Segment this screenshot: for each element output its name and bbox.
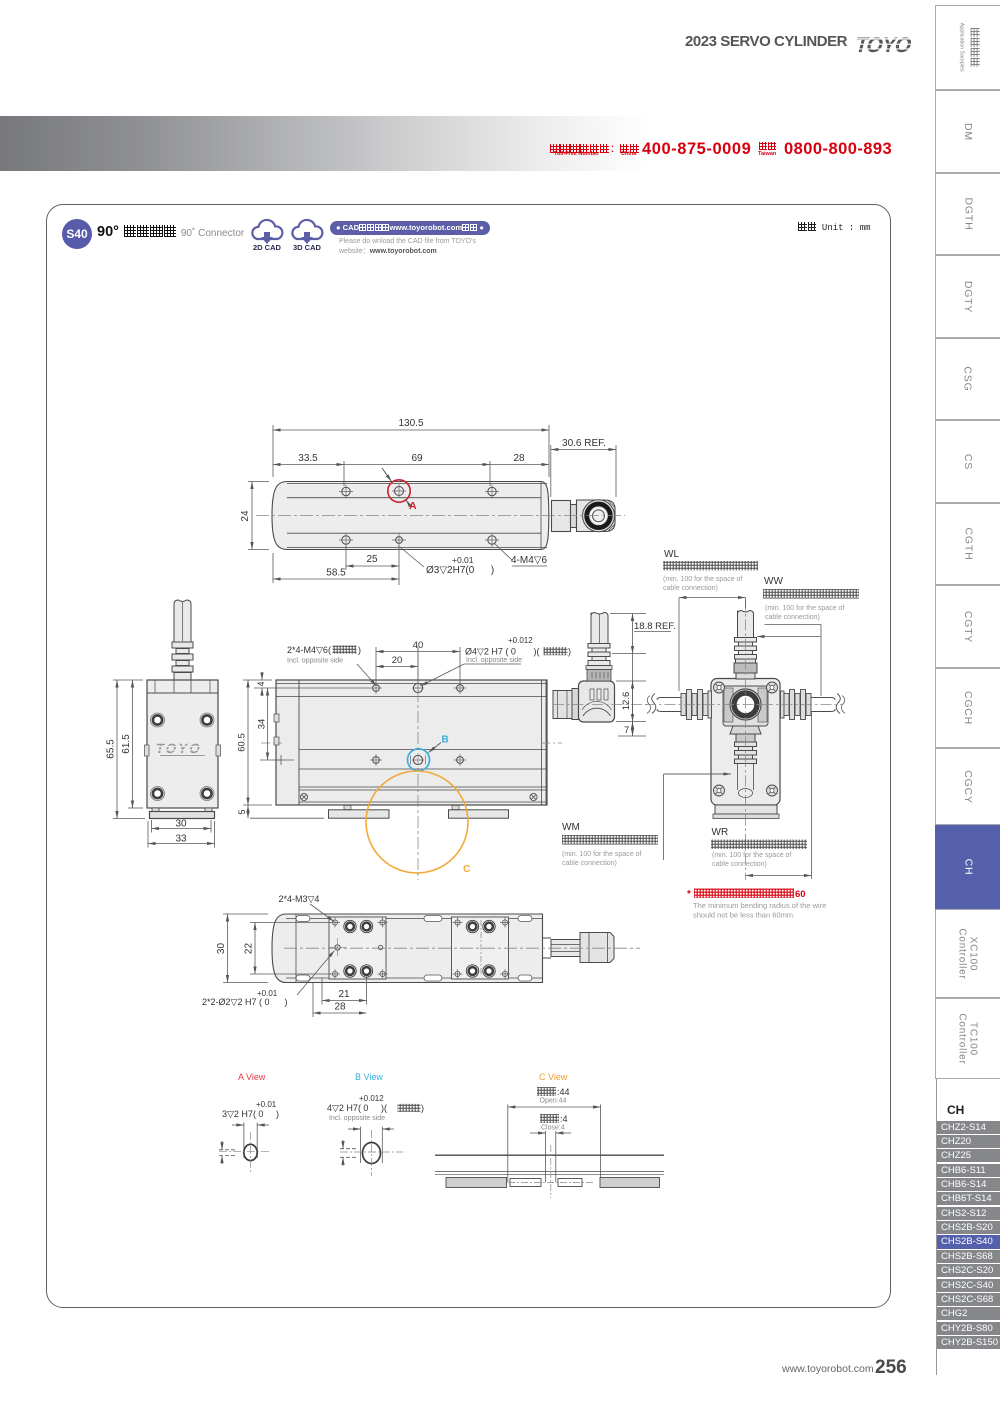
svg-text:5: 5 bbox=[237, 809, 247, 814]
svg-text:4: 4 bbox=[256, 681, 266, 686]
svg-text:60: 60 bbox=[795, 889, 806, 900]
svg-text:Ø3▽2H7(0 ): Ø3▽2H7(0 ) bbox=[426, 565, 494, 576]
svg-text:34: 34 bbox=[257, 719, 268, 730]
svg-text:2*4-M3▽4: 2*4-M3▽4 bbox=[279, 894, 320, 904]
svg-text:WW: WW bbox=[764, 576, 783, 587]
svg-text:A: A bbox=[409, 500, 417, 512]
svg-text:+0.01: +0.01 bbox=[256, 1100, 277, 1109]
svg-text:A View: A View bbox=[238, 1072, 266, 1082]
svg-text:B View: B View bbox=[355, 1072, 383, 1082]
svg-text:+0.012: +0.012 bbox=[508, 636, 533, 645]
svg-text:65.5: 65.5 bbox=[106, 739, 117, 759]
svg-text:cable connection): cable connection) bbox=[562, 860, 617, 867]
svg-text:18.8 REF.: 18.8 REF. bbox=[634, 621, 676, 632]
svg-text:C: C bbox=[463, 863, 471, 875]
svg-text:4▽2 H7( 0 )(: 4▽2 H7( 0 )( bbox=[327, 1103, 387, 1113]
svg-text:cable connection): cable connection) bbox=[765, 614, 820, 621]
svg-text:33: 33 bbox=[175, 834, 187, 845]
svg-text:58.5: 58.5 bbox=[326, 568, 346, 579]
svg-text:(min. 100 for the space of: (min. 100 for the space of bbox=[765, 605, 844, 612]
svg-text:25: 25 bbox=[366, 554, 378, 565]
svg-text:12.6: 12.6 bbox=[621, 692, 632, 711]
svg-text:Open:44: Open:44 bbox=[540, 1098, 567, 1105]
svg-text:The minimum bending radius of: The minimum bending radius of the wire bbox=[693, 901, 826, 910]
svg-text:4-M4▽6: 4-M4▽6 bbox=[511, 555, 547, 566]
svg-text:33.5: 33.5 bbox=[298, 453, 318, 464]
svg-text:40: 40 bbox=[413, 640, 424, 651]
svg-text:cable connection): cable connection) bbox=[663, 585, 718, 592]
svg-text:30: 30 bbox=[175, 819, 187, 830]
svg-text:*: * bbox=[687, 889, 691, 900]
svg-text:60.5: 60.5 bbox=[237, 733, 248, 752]
svg-text:C View: C View bbox=[539, 1072, 568, 1082]
svg-text:): ) bbox=[568, 647, 571, 657]
svg-text::44: :44 bbox=[557, 1087, 570, 1097]
svg-text:3▽2 H7( 0 ): 3▽2 H7( 0 ) bbox=[222, 1109, 279, 1119]
svg-text:should not be less than 60mm.: should not be less than 60mm. bbox=[693, 911, 795, 920]
svg-text:69: 69 bbox=[411, 453, 423, 464]
svg-text:22: 22 bbox=[244, 943, 255, 955]
svg-text:7: 7 bbox=[624, 725, 629, 736]
svg-text:Close:4: Close:4 bbox=[541, 1125, 565, 1132]
svg-text:28: 28 bbox=[334, 1002, 346, 1013]
svg-text:61.5: 61.5 bbox=[121, 734, 132, 754]
svg-text:): ) bbox=[358, 645, 361, 655]
svg-text:(min. 100 for the space of: (min. 100 for the space of bbox=[712, 852, 791, 859]
svg-text:21: 21 bbox=[338, 989, 350, 1000]
svg-text:2*4-M4▽6(: 2*4-M4▽6( bbox=[287, 645, 331, 655]
svg-text:B: B bbox=[442, 735, 449, 746]
svg-text:Incl. opposite side: Incl. opposite side bbox=[287, 658, 343, 665]
svg-text:): ) bbox=[421, 1103, 424, 1113]
svg-text:WM: WM bbox=[562, 822, 580, 833]
svg-text:(min. 100 for the space of: (min. 100 for the space of bbox=[663, 576, 742, 583]
svg-text:Ø4▽2 H7 ( 0 )(: Ø4▽2 H7 ( 0 )( bbox=[465, 647, 539, 657]
svg-text:+0.012: +0.012 bbox=[359, 1094, 384, 1103]
svg-text:28: 28 bbox=[513, 453, 525, 464]
svg-text:2*2-Ø2▽2 H7 ( 0 ): 2*2-Ø2▽2 H7 ( 0 ) bbox=[202, 997, 287, 1007]
svg-text:+0.01: +0.01 bbox=[452, 555, 474, 565]
svg-text:24: 24 bbox=[240, 510, 251, 522]
svg-text:WL: WL bbox=[664, 549, 679, 560]
svg-text:Incl. opposite side: Incl. opposite side bbox=[329, 1115, 385, 1122]
svg-text::4: :4 bbox=[560, 1114, 568, 1124]
svg-text:cable connection): cable connection) bbox=[712, 861, 767, 868]
svg-text:20: 20 bbox=[392, 655, 403, 666]
svg-text:30: 30 bbox=[216, 943, 227, 955]
svg-text:(min. 100 for the space of: (min. 100 for the space of bbox=[562, 851, 641, 858]
svg-text:Incl. opposite side: Incl. opposite side bbox=[466, 657, 522, 664]
svg-text:130.5: 130.5 bbox=[398, 418, 423, 429]
svg-text:30.6 REF.: 30.6 REF. bbox=[562, 438, 606, 449]
svg-text:WR: WR bbox=[712, 827, 729, 838]
